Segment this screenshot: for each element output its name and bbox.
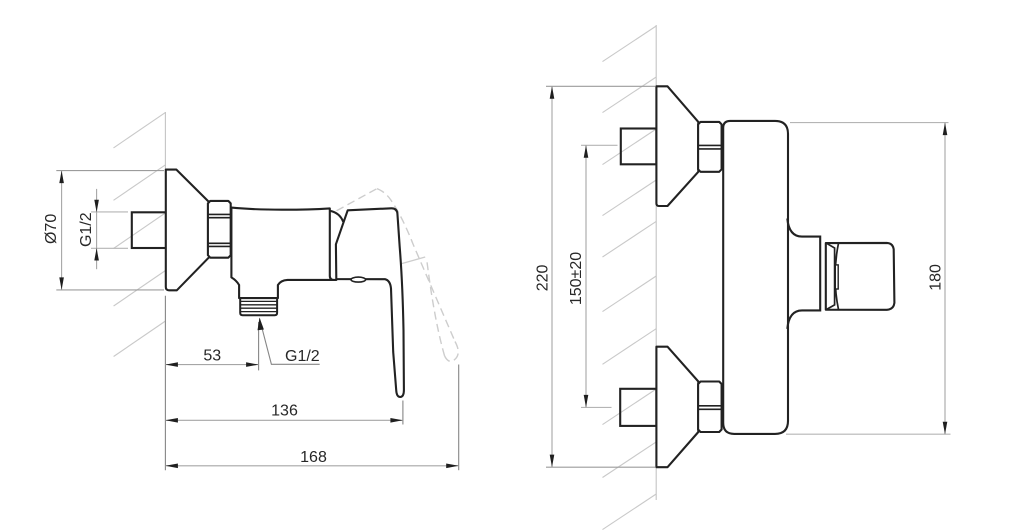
svg-text:180: 180 xyxy=(927,264,944,291)
svg-text:G1/2: G1/2 xyxy=(285,348,320,365)
svg-text:G1/2: G1/2 xyxy=(78,212,95,247)
svg-text:150±20: 150±20 xyxy=(568,252,585,305)
svg-text:220: 220 xyxy=(535,264,552,291)
svg-text:136: 136 xyxy=(271,403,298,420)
svg-text:168: 168 xyxy=(300,449,327,466)
svg-text:Ø70: Ø70 xyxy=(43,214,60,244)
svg-text:53: 53 xyxy=(203,348,221,365)
